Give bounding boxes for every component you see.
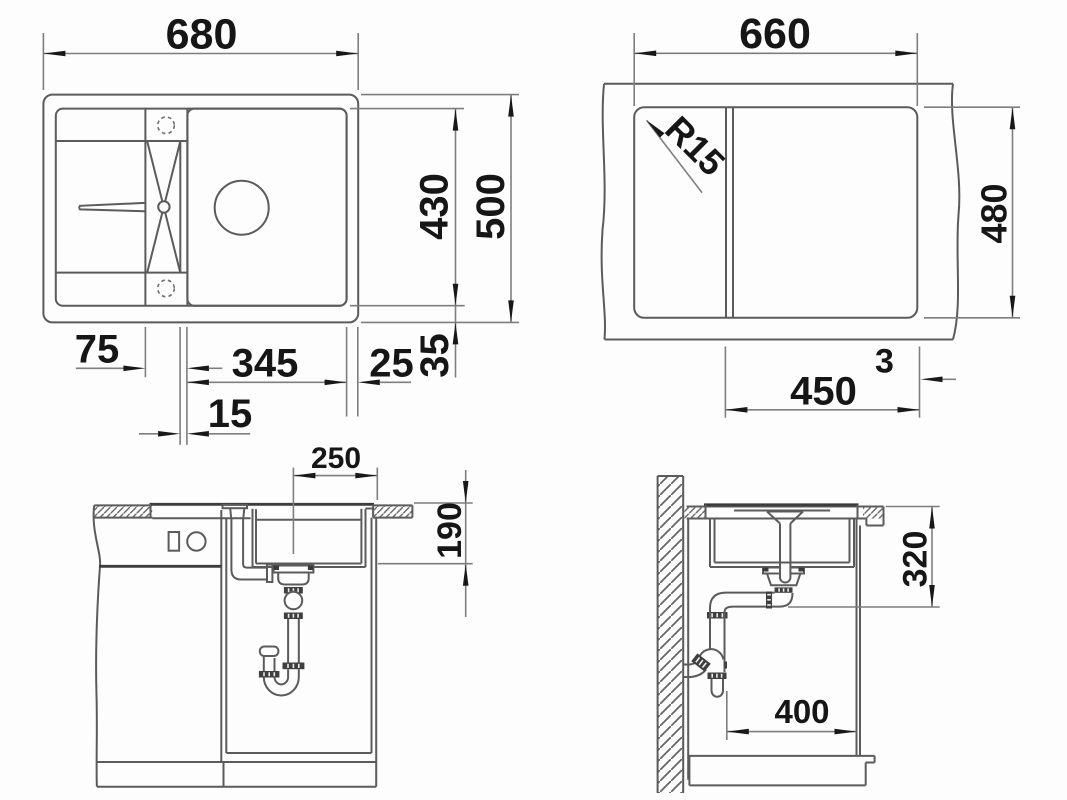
svg-text:480: 480 [974, 183, 1015, 243]
svg-text:15: 15 [208, 392, 253, 436]
svg-text:R15: R15 [657, 108, 733, 184]
svg-text:75: 75 [75, 328, 120, 372]
svg-text:3: 3 [875, 343, 894, 381]
svg-text:250: 250 [311, 442, 361, 475]
svg-text:190: 190 [431, 502, 469, 559]
svg-text:680: 680 [166, 11, 238, 59]
svg-text:345: 345 [232, 342, 299, 386]
svg-text:430: 430 [413, 173, 457, 240]
svg-text:450: 450 [790, 370, 857, 414]
svg-text:320: 320 [897, 531, 935, 588]
svg-text:660: 660 [739, 10, 811, 58]
svg-text:25: 25 [369, 342, 414, 386]
svg-text:400: 400 [774, 693, 829, 730]
svg-text:500: 500 [469, 173, 513, 240]
svg-text:35: 35 [413, 333, 457, 378]
